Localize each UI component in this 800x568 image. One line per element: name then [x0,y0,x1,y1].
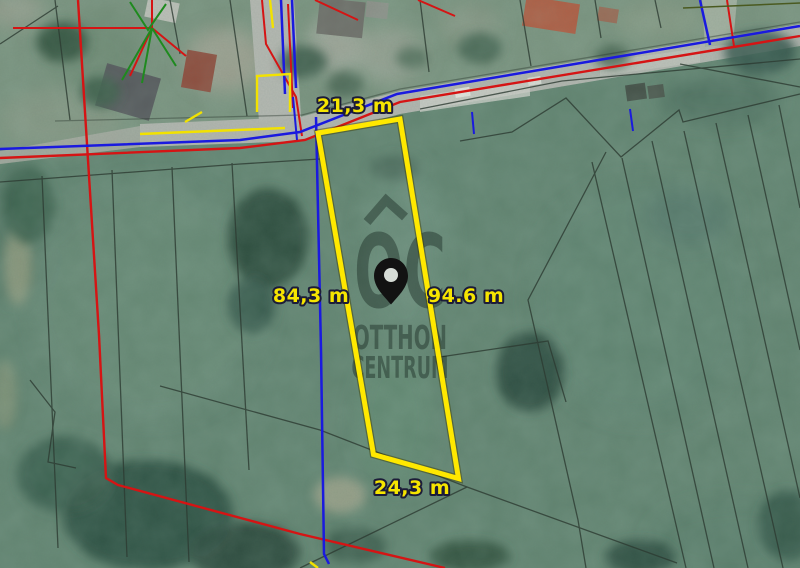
measurement-label-left: 84,3 m [273,285,349,307]
measurement-label-top: 21,3 m [317,95,393,117]
map-canvas: OC OTTHON CENTRUM 21,3 m 84,3 m 94.6 m 2… [0,0,800,568]
measurement-label-bottom: 24,3 m [374,477,450,499]
measurement-label-right: 94.6 m [428,285,504,307]
watermark-line2: CENTRUM [352,351,449,386]
aerial-map-image: OC OTTHON CENTRUM 21,3 m 84,3 m 94.6 m 2… [0,0,800,568]
